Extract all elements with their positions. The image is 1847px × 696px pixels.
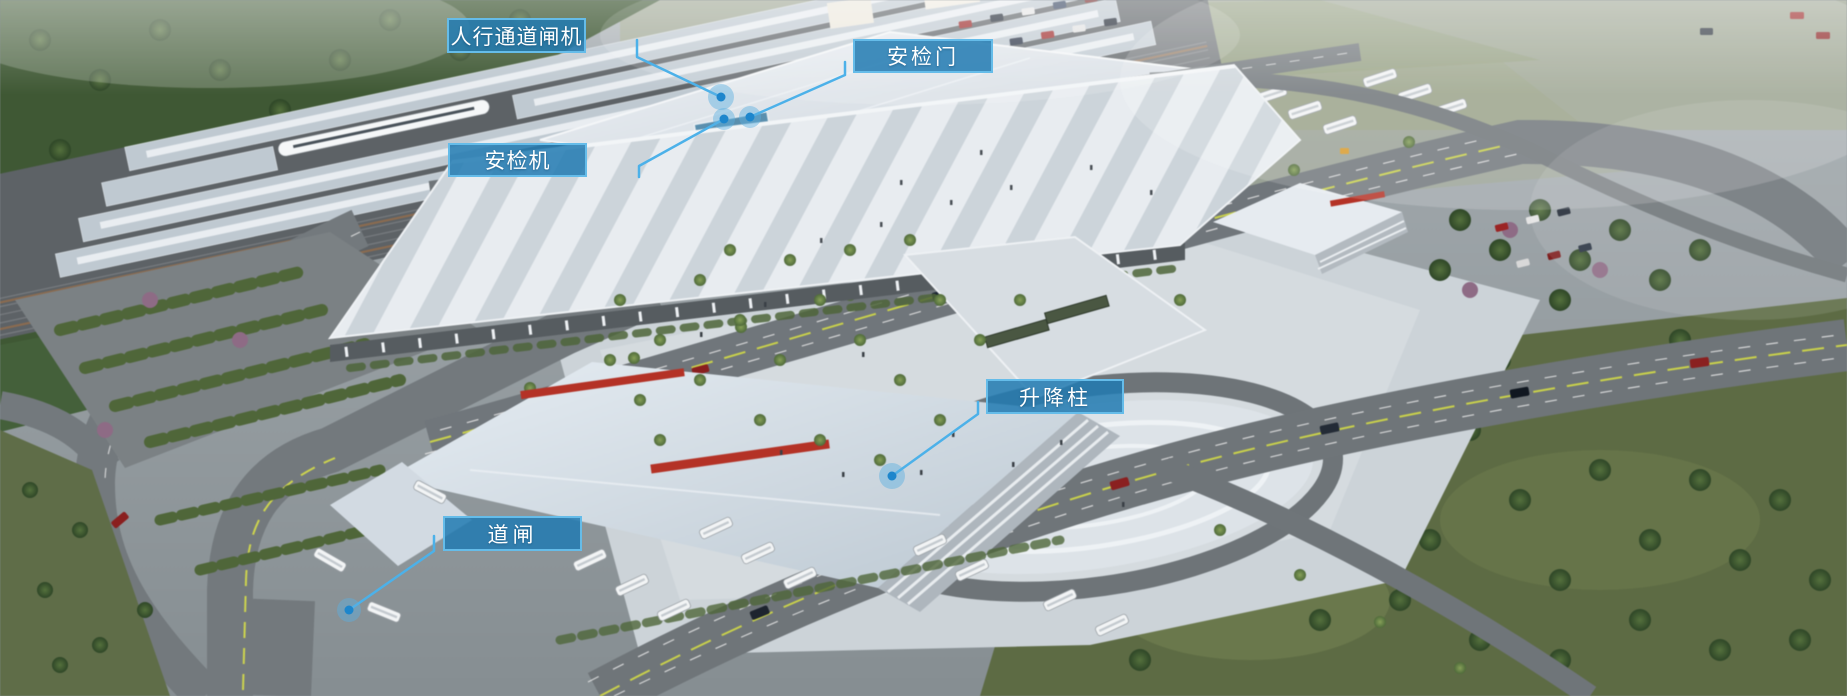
marker-dot-road-barrier-gate[interactable] [345,606,354,615]
marker-dot-security-door[interactable] [746,113,755,122]
callout-leaders [0,0,1847,696]
leader-line-road-barrier-gate [349,536,434,610]
callout-road-barrier-gate[interactable]: 道闸 [443,516,582,551]
leader-line-security-scanner [639,119,724,177]
marker-dot-pedestrian-turnstile[interactable] [717,93,726,102]
leader-line-lifting-bollard [892,402,978,476]
marker-dot-lifting-bollard[interactable] [888,472,897,481]
callout-security-scanner[interactable]: 安检机 [448,143,587,177]
leader-line-security-door [750,62,845,117]
hub-aerial-banner: 人行通道闸机 安检门 安检机 升降柱 道闸 [0,0,1847,696]
leader-line-pedestrian-turnstile [637,40,721,97]
marker-dot-security-scanner[interactable] [720,115,729,124]
callout-lifting-bollard[interactable]: 升降柱 [986,379,1124,414]
callout-pedestrian-turnstile[interactable]: 人行通道闸机 [447,18,586,53]
callout-security-door[interactable]: 安检门 [853,39,993,73]
